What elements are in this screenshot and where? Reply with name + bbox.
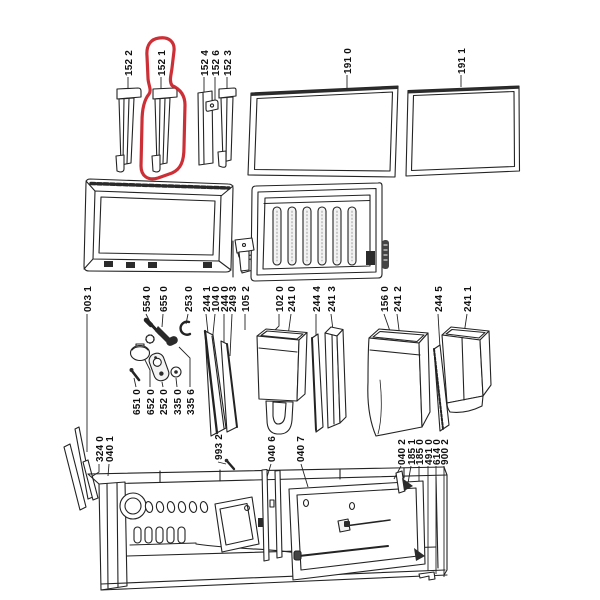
part-label-335-0: 335 0 [173,389,184,415]
part-191-0-gasket [248,86,398,177]
part-252-0-lamp-housing [147,351,171,382]
part-label-993-2: 993 2 [214,434,225,460]
part-label-652-0: 652 0 [146,389,157,415]
part-drawer-241-1 [442,327,491,412]
part-label-156-0: 156 0 [380,286,391,312]
part-label-152-2: 152 2 [124,50,135,76]
part-label-554-0: 554 0 [142,286,153,312]
diagram-page: 152 2 152 1 152 4 152 6 152 3 191 0 191 … [0,0,600,600]
part-label-252-0: 252 0 [159,389,170,415]
part-label-651-0: 651 0 [132,389,143,415]
part-label-152-1: 152 1 [157,50,168,76]
part-label-244-4: 244 4 [312,286,323,312]
part-label-241-3: 241 3 [327,286,338,312]
part-label-152-3: 152 3 [223,50,234,76]
part-label-102-0: 102 0 [275,286,286,312]
part-label-900-2: 900 2 [440,439,451,465]
part-191-1-gasket [406,86,520,176]
part-label-191-1: 191 1 [457,48,468,74]
diagram-canvas: 152 2 152 1 152 4 152 6 152 3 191 0 191 … [0,0,600,600]
part-label-040-7: 040 7 [296,436,307,462]
part-drawer-241-2 [368,329,430,436]
part-cabinet-base [64,427,447,590]
part-panel-244-4 [312,334,323,432]
part-152-6-clip [206,100,218,111]
part-label-335-6: 335 6 [186,389,197,415]
part-label-003-1: 003 1 [83,286,94,312]
part-liner-right-strip [382,240,389,269]
part-label-105-2: 105 2 [241,286,252,312]
part-freezer-door-panel [84,179,233,272]
part-ribbed-door-liner [251,183,382,281]
part-label-040-1: 040 1 [105,436,116,462]
part-label-249-3: 249 3 [228,286,239,312]
part-label-040-6: 040 6 [267,436,278,462]
part-152-2-handle [116,88,141,172]
part-drawer-241-0 [257,329,307,434]
part-tray-241-3 [325,327,346,428]
part-label-191-0: 191 0 [343,48,354,74]
part-152-1-handle [152,88,177,172]
part-label-241-2: 241 2 [393,286,404,312]
part-label-244-5: 244 5 [434,286,445,312]
part-335-0-bulb [171,367,181,377]
part-152-3-trim [218,88,236,167]
part-253-0-clamp [181,322,190,335]
part-label-152-6: 152 6 [211,50,222,76]
part-label-241-1: 241 1 [463,286,474,312]
part-label-253-0: 253 0 [184,286,195,312]
part-label-152-4: 152 4 [200,50,211,76]
part-label-241-0: 241 0 [287,286,298,312]
part-label-655-0: 655 0 [159,286,170,312]
